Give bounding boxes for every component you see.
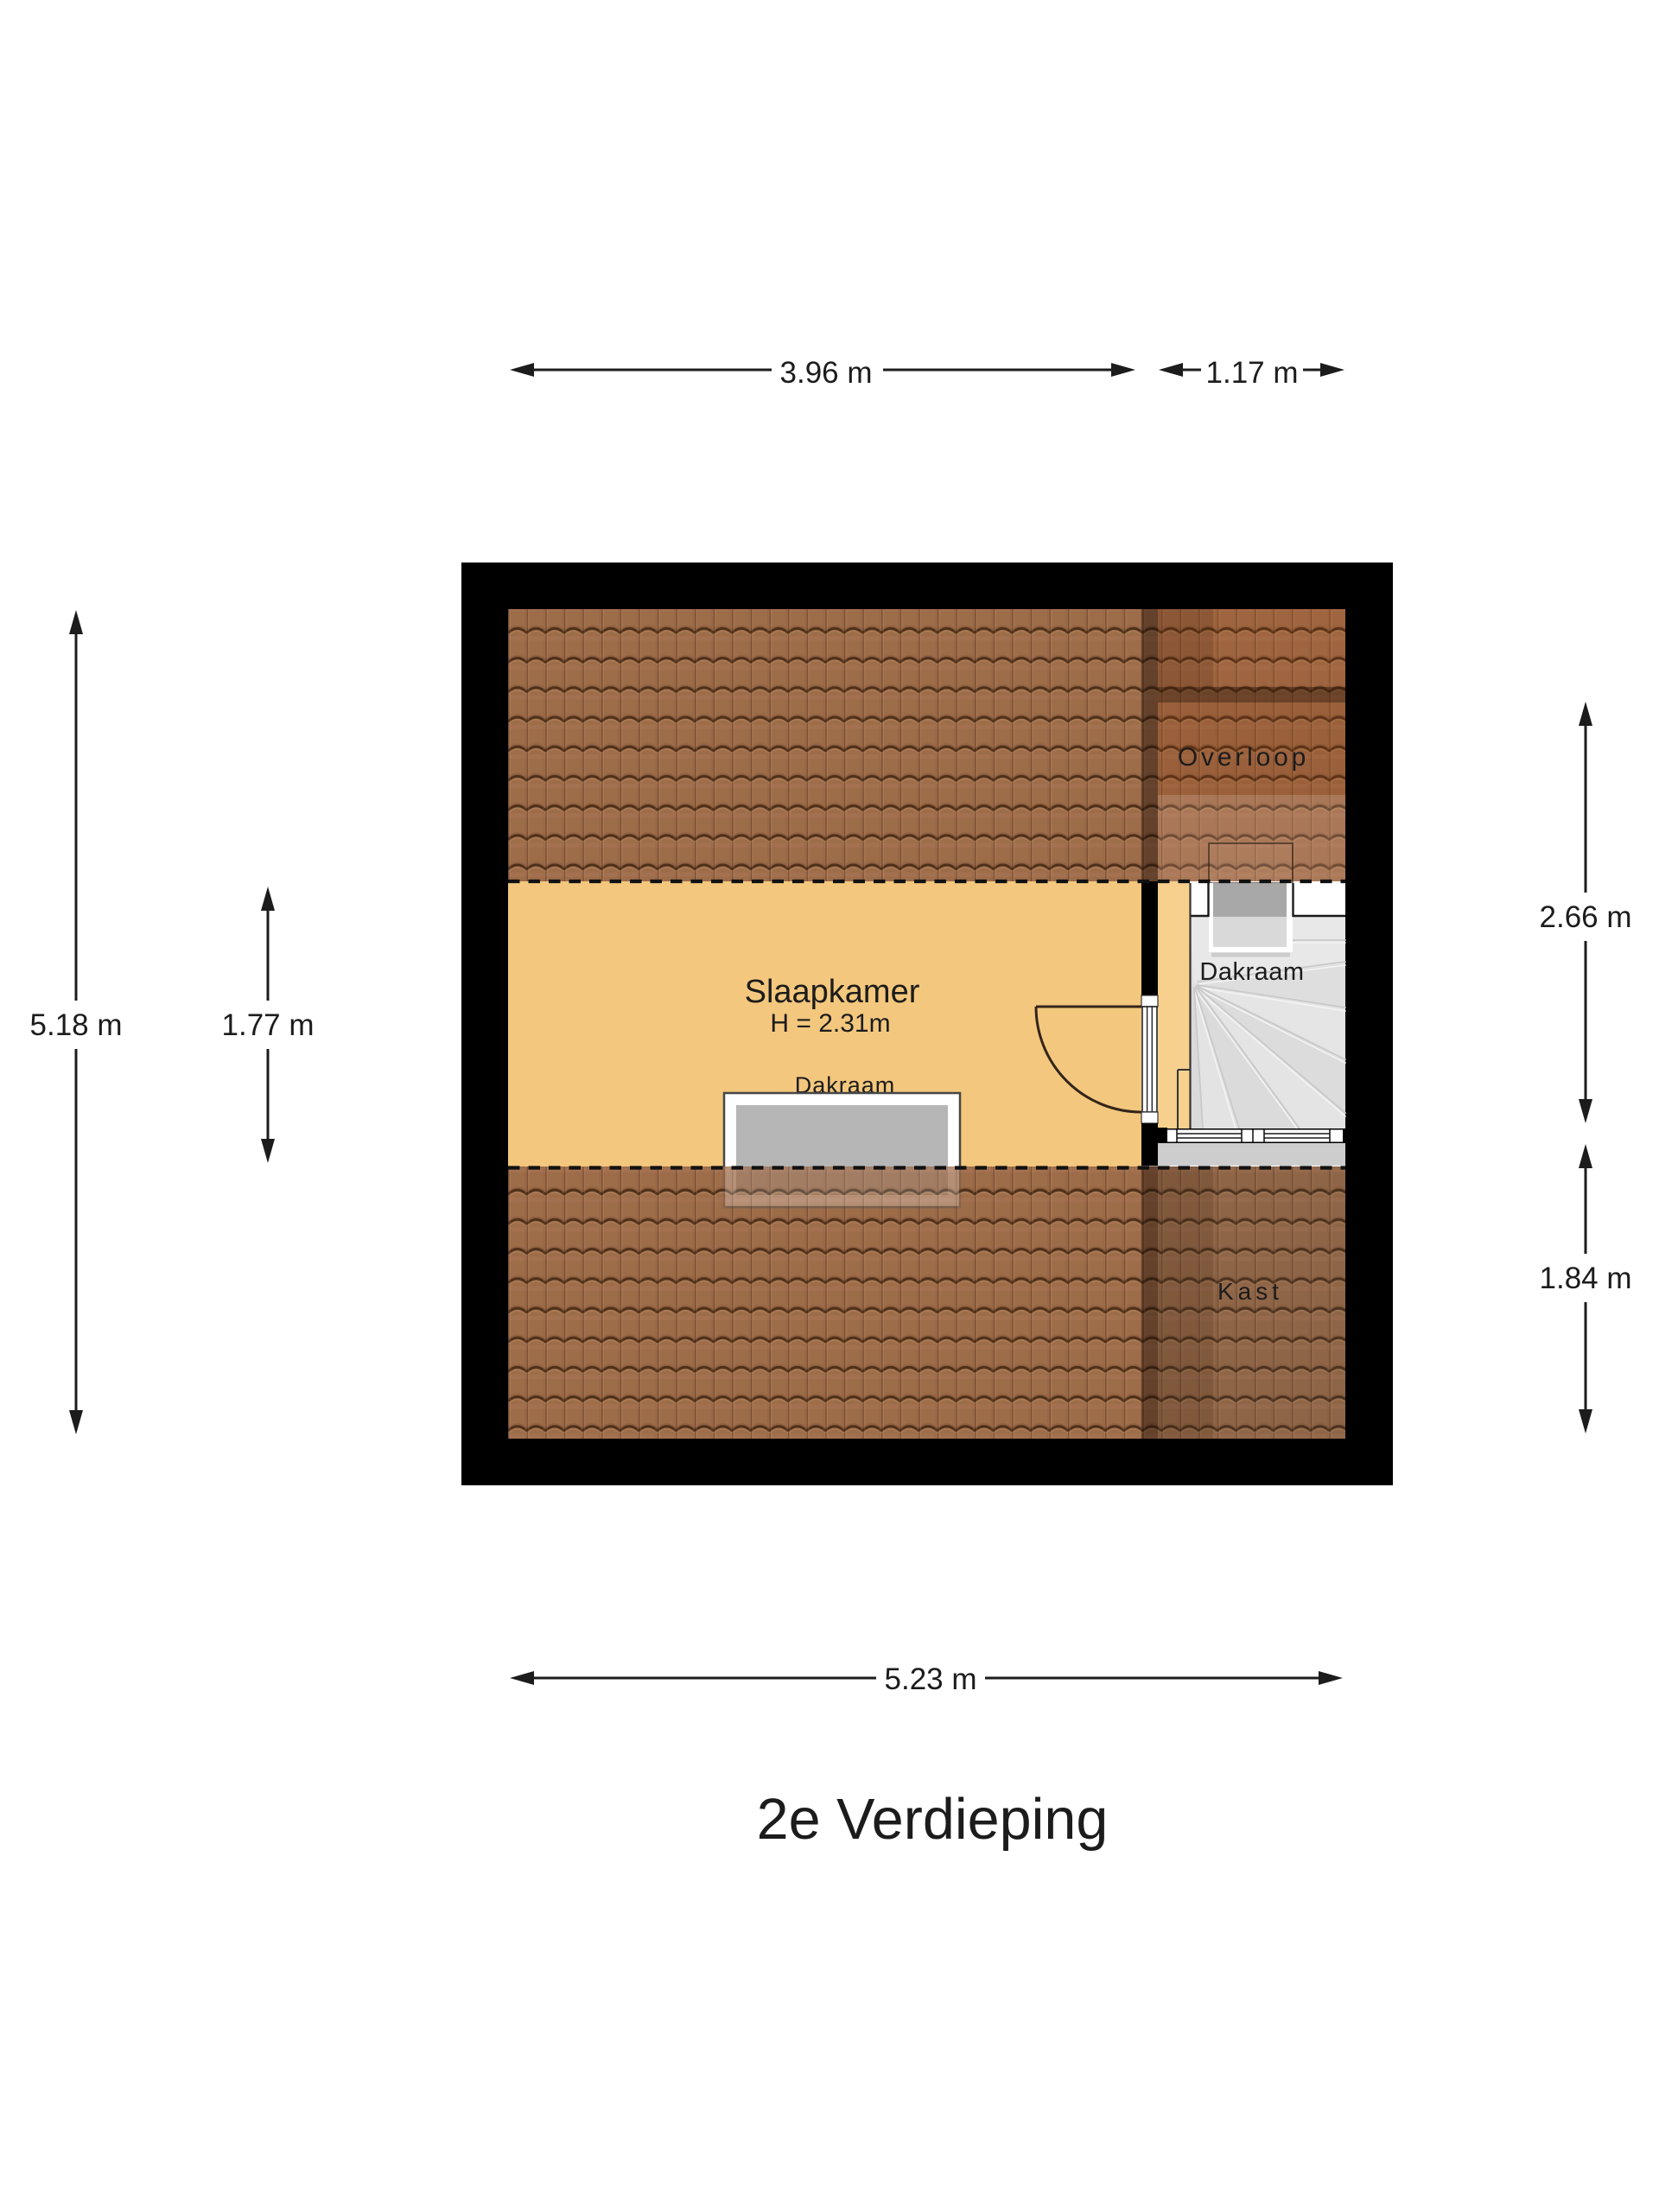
svg-text:Dakraam: Dakraam: [1199, 958, 1304, 986]
svg-text:1.17 m: 1.17 m: [1206, 356, 1299, 390]
svg-text:H = 2.31m: H = 2.31m: [770, 1009, 890, 1038]
svg-text:Slaapkamer: Slaapkamer: [745, 974, 920, 1010]
svg-text:Overloop: Overloop: [1178, 743, 1309, 772]
svg-text:1.84 m: 1.84 m: [1540, 1262, 1632, 1295]
svg-text:5.23 m: 5.23 m: [885, 1662, 977, 1696]
svg-text:5.18 m: 5.18 m: [30, 1008, 123, 1042]
svg-text:1.77 m: 1.77 m: [222, 1008, 315, 1042]
svg-text:2.66 m: 2.66 m: [1540, 900, 1632, 934]
svg-text:2e Verdieping: 2e Verdieping: [757, 1788, 1109, 1852]
svg-text:3.96 m: 3.96 m: [780, 356, 873, 390]
svg-text:Kast: Kast: [1217, 1278, 1283, 1305]
